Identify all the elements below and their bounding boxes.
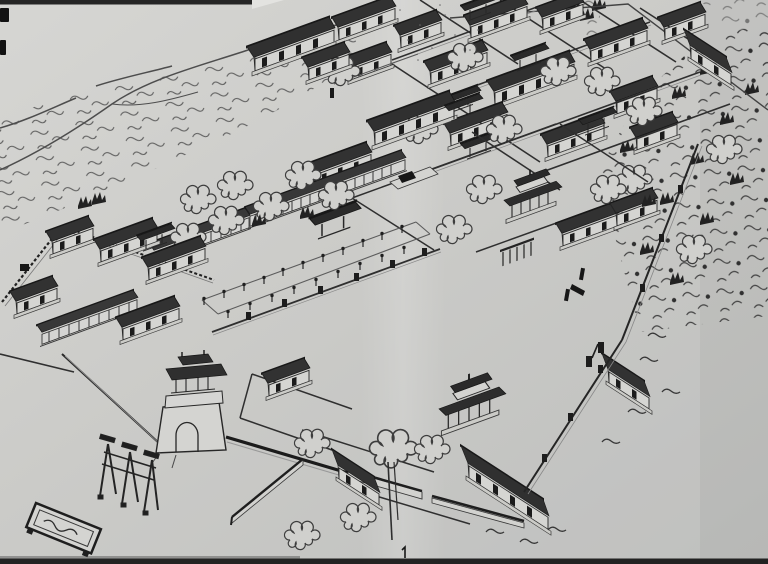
temple-complex-illustration: Black-and-white photograph of a hand-dra…: [0, 0, 768, 564]
photo-of-drawing: Black-and-white photograph of a hand-dra…: [0, 0, 768, 564]
small-stele: [330, 88, 334, 98]
dark-kiosk: [20, 264, 29, 271]
